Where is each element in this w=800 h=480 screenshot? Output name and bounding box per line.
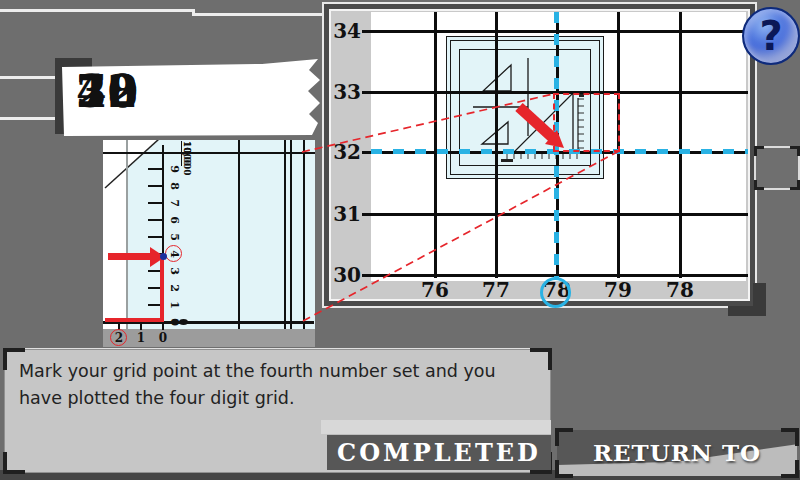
scale-fraction-denominator: 10,000 bbox=[182, 141, 192, 175]
ruler-tick bbox=[148, 202, 163, 204]
ruler-tick bbox=[140, 321, 142, 330]
ruler-tick bbox=[148, 185, 163, 187]
ruler-tick bbox=[148, 168, 163, 170]
map-grid-lines-layer: 34333231307677787978 bbox=[331, 11, 748, 299]
ruler-number: 3 bbox=[166, 263, 182, 279]
circled-value-2 bbox=[110, 329, 127, 346]
map-grid-panel: 34333231307677787978 bbox=[322, 2, 757, 308]
side-panel-handle[interactable] bbox=[754, 146, 800, 190]
circled-value-4 bbox=[165, 245, 182, 262]
ruler-number: 1 bbox=[166, 297, 182, 313]
corner-bracket bbox=[790, 180, 800, 190]
plot-path-vertical bbox=[160, 258, 164, 320]
corner-bracket bbox=[754, 146, 764, 156]
corner-bracket bbox=[3, 452, 25, 474]
map-x-label: 77 bbox=[480, 282, 512, 299]
background-line bbox=[0, 76, 62, 79]
map-y-label: 33 bbox=[333, 81, 361, 103]
grid-line-vertical bbox=[434, 12, 437, 278]
red-arrow-icon bbox=[108, 253, 150, 260]
ruler-number: 2 bbox=[166, 280, 182, 296]
circled-easting-label bbox=[540, 277, 571, 308]
return-to-main-button[interactable]: RETURN TO MAIN bbox=[557, 430, 797, 476]
corner-bracket bbox=[530, 348, 552, 370]
ruler-tick bbox=[148, 236, 163, 238]
ruler-number: 5 bbox=[166, 229, 182, 245]
grid-line-vertical bbox=[495, 12, 498, 278]
ruler-number: 3 bbox=[103, 330, 105, 346]
grid-line-vertical bbox=[679, 12, 682, 278]
plot-path-horizontal bbox=[105, 318, 164, 322]
ruler-number: 0 bbox=[166, 314, 182, 330]
map-x-label: 78 bbox=[664, 282, 696, 299]
corner-bracket bbox=[790, 146, 800, 156]
grid-number-banner: 78 20 32 40 bbox=[62, 57, 324, 137]
ruler-tick bbox=[148, 219, 163, 221]
ruler-number: 7 bbox=[166, 195, 182, 211]
ruler-number: 8 bbox=[166, 178, 182, 194]
return-to-main-label: RETURN TO MAIN bbox=[557, 430, 797, 480]
ruler-tick bbox=[162, 321, 164, 330]
map-x-label: 76 bbox=[419, 282, 451, 299]
app-screen: 98765432103210 1000 10,000 bbox=[0, 0, 800, 480]
map-y-label: 32 bbox=[333, 141, 361, 163]
corner-bracket bbox=[754, 180, 764, 190]
corner-bracket-decoration bbox=[55, 58, 92, 68]
grid-number-digits: 40 bbox=[76, 69, 139, 115]
completed-button[interactable]: COMPLETED bbox=[327, 434, 551, 470]
background-line bbox=[0, 9, 194, 12]
instruction-text: Mark your grid point at the fourth numbe… bbox=[19, 358, 524, 412]
background-line bbox=[193, 13, 323, 16]
map-y-label: 34 bbox=[333, 20, 361, 42]
button-highlight-band bbox=[321, 420, 551, 434]
instruction-panel: Mark your grid point at the fourth numbe… bbox=[4, 349, 551, 473]
background-line bbox=[0, 117, 62, 120]
map-y-label: 31 bbox=[333, 203, 361, 225]
help-button[interactable]: ? bbox=[742, 7, 800, 65]
scale-fraction: 1000 10,000 bbox=[166, 141, 192, 177]
magnified-scale-panel: 98765432103210 1000 10,000 bbox=[103, 140, 315, 347]
map-y-label: 30 bbox=[333, 264, 361, 286]
grid-point-dot bbox=[160, 253, 167, 260]
map-x-label: 79 bbox=[602, 282, 634, 299]
ruler-number: 1 bbox=[133, 330, 149, 346]
red-arrow-icon bbox=[516, 103, 571, 153]
map-grid-inner: 34333231307677787978 bbox=[329, 9, 750, 301]
corner-bracket-decoration bbox=[728, 306, 766, 316]
scale-ticks-layer: 98765432103210 bbox=[103, 140, 315, 347]
ruler-number: 6 bbox=[166, 212, 182, 228]
ruler-number: 0 bbox=[155, 330, 171, 346]
